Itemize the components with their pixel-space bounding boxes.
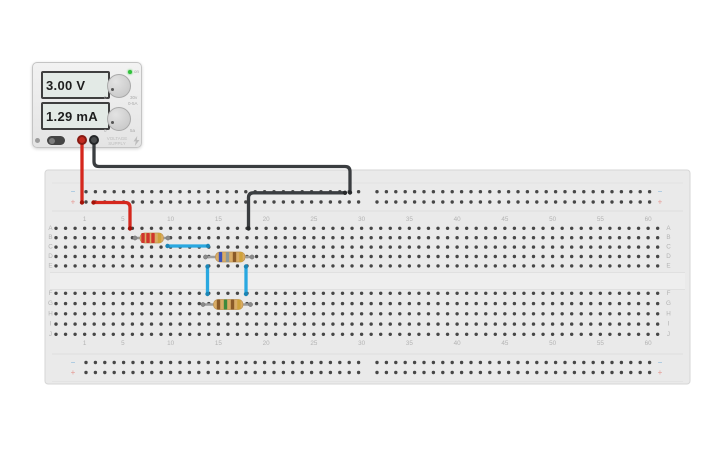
column-number-bottom: 55	[597, 340, 605, 347]
band-red	[141, 233, 144, 243]
rail-negative-symbol: −	[658, 187, 663, 196]
rail-positive-symbol: +	[658, 368, 663, 377]
row-letter: F	[667, 290, 671, 297]
column-number-bottom: 30	[358, 340, 366, 347]
column-number-top: 50	[549, 216, 557, 223]
row-letter: B	[666, 234, 670, 241]
column-number-top: 5	[121, 216, 125, 223]
band-red	[146, 233, 149, 243]
column-number-bottom: 15	[215, 340, 223, 347]
band-red	[151, 233, 154, 243]
column-number-bottom: 10	[167, 340, 175, 347]
column-number-bottom: 50	[549, 340, 557, 347]
row-letter: J	[667, 331, 670, 338]
band-gold	[237, 300, 240, 310]
row-letter: C	[666, 244, 671, 251]
rail-negative-symbol: −	[658, 358, 663, 367]
wire-blue-right-gap-jumper[interactable]	[244, 264, 248, 296]
rail-positive-symbol: +	[71, 368, 76, 377]
column-number-bottom: 45	[501, 340, 509, 347]
band-gold	[158, 233, 161, 243]
wire-red-supply-to-positive-rail[interactable]	[80, 139, 84, 205]
row-letter: I	[50, 321, 52, 328]
wire-blue-left-gap-jumper[interactable]	[205, 264, 209, 296]
rail-positive-symbol: +	[658, 198, 663, 207]
row-letter: H	[48, 310, 53, 317]
circuit-canvas[interactable]: 3.00 V 1.29 mA on 0 30v 0-5A 0 5a VOLTAG…	[0, 0, 725, 453]
column-number-top: 1	[83, 216, 87, 223]
negative-terminal[interactable]	[89, 135, 99, 145]
column-number-bottom: 5	[121, 340, 125, 347]
row-letter: C	[48, 244, 53, 251]
row-letter: G	[666, 300, 671, 307]
column-number-bottom: 1	[83, 340, 87, 347]
column-number-bottom: 35	[406, 340, 414, 347]
column-number-bottom: 60	[645, 340, 653, 347]
column-number-bottom: 40	[454, 340, 462, 347]
wire-blue-row-c-jumper[interactable]	[165, 244, 210, 248]
band-brown	[233, 252, 236, 262]
band-brown	[217, 300, 220, 310]
column-number-top: 30	[358, 216, 366, 223]
column-number-top: 25	[310, 216, 318, 223]
column-number-top: 45	[501, 216, 509, 223]
rail-negative-symbol: −	[71, 358, 76, 367]
positive-terminal[interactable]	[77, 135, 87, 145]
column-number-top: 35	[406, 216, 414, 223]
row-letter: D	[666, 253, 671, 260]
row-letter: G	[48, 300, 53, 307]
column-number-bottom: 25	[310, 340, 318, 347]
column-number-top: 15	[215, 216, 223, 223]
row-letter: E	[666, 262, 670, 269]
row-letter: F	[49, 290, 53, 297]
row-letter: E	[48, 262, 52, 269]
band-blue	[219, 252, 222, 262]
band-green	[224, 300, 227, 310]
rail-negative-symbol: −	[71, 187, 76, 196]
band-brown	[231, 300, 234, 310]
row-letter: B	[48, 234, 52, 241]
rail-positive-symbol: +	[71, 198, 76, 207]
band-gold	[239, 252, 242, 262]
row-letter: J	[49, 331, 52, 338]
column-number-top: 55	[597, 216, 605, 223]
breadboard-area[interactable]: −−−−++++11551010151520202525303035354040…	[0, 0, 725, 453]
column-number-bottom: 20	[263, 340, 271, 347]
center-channel	[50, 273, 685, 290]
band-gray	[226, 252, 229, 262]
column-number-top: 20	[263, 216, 271, 223]
column-number-top: 60	[645, 216, 653, 223]
column-number-top: 10	[167, 216, 175, 223]
row-letter: D	[48, 253, 53, 260]
row-letter: I	[668, 321, 670, 328]
row-letter: H	[666, 310, 671, 317]
column-number-top: 40	[454, 216, 462, 223]
